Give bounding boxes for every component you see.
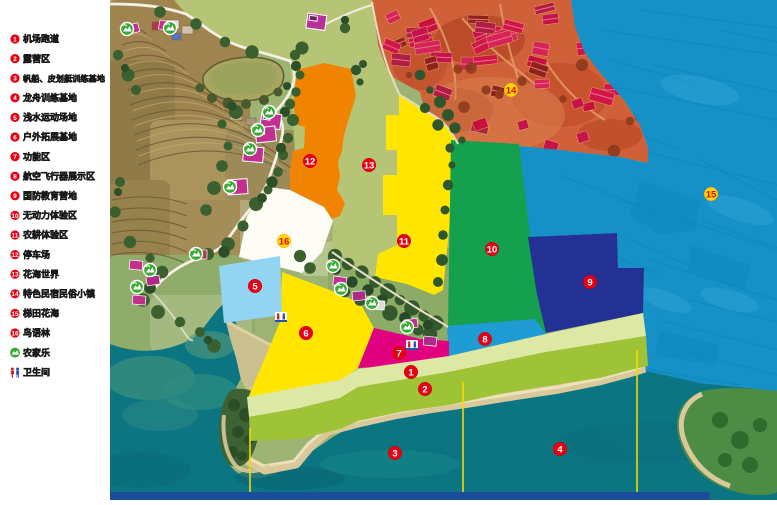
svg-text:花海世界: 花海世界 <box>23 268 59 279</box>
svg-text:7: 7 <box>13 154 17 161</box>
svg-text:浅水运动场地: 浅水运动场地 <box>23 112 77 123</box>
svg-text:户外拓展基地: 户外拓展基地 <box>23 131 77 142</box>
svg-text:9: 9 <box>13 193 17 200</box>
svg-text:2: 2 <box>13 56 17 63</box>
svg-text:露营区: 露营区 <box>23 53 50 64</box>
svg-text:3: 3 <box>13 76 17 83</box>
svg-text:1: 1 <box>408 367 414 378</box>
svg-text:停车场: 停车场 <box>23 249 50 260</box>
svg-text:15: 15 <box>11 311 19 318</box>
svg-text:15: 15 <box>706 189 717 200</box>
svg-text:11: 11 <box>12 232 19 239</box>
svg-text:无动力体验区: 无动力体验区 <box>22 210 77 221</box>
svg-text:16: 16 <box>11 330 19 337</box>
svg-text:鸟语林: 鸟语林 <box>23 327 51 338</box>
svg-text:5: 5 <box>252 281 258 292</box>
svg-text:10: 10 <box>11 213 19 220</box>
svg-text:4: 4 <box>557 444 563 455</box>
svg-text:7: 7 <box>396 348 401 359</box>
svg-text:8: 8 <box>13 174 17 181</box>
svg-text:龙舟训练基地: 龙舟训练基地 <box>22 92 77 103</box>
svg-text:13: 13 <box>364 160 375 171</box>
svg-text:11: 11 <box>399 236 410 247</box>
svg-text:14: 14 <box>11 291 19 298</box>
svg-text:卫生间: 卫生间 <box>23 366 50 377</box>
svg-text:国防教育营地: 国防教育营地 <box>23 190 77 201</box>
svg-text:12: 12 <box>305 156 316 167</box>
svg-text:13: 13 <box>11 272 19 279</box>
svg-text:6: 6 <box>13 134 17 141</box>
svg-text:10: 10 <box>487 244 498 255</box>
svg-text:梯田花海: 梯田花海 <box>23 308 59 319</box>
svg-text:航空飞行器展示区: 航空飞行器展示区 <box>23 170 95 181</box>
svg-text:16: 16 <box>279 236 290 247</box>
svg-text:9: 9 <box>587 277 592 288</box>
svg-text:农家乐: 农家乐 <box>22 347 50 358</box>
svg-text:机场跑道: 机场跑道 <box>23 33 59 44</box>
svg-text:8: 8 <box>482 334 487 345</box>
svg-text:14: 14 <box>506 85 517 96</box>
svg-text:4: 4 <box>13 95 17 102</box>
svg-text:1: 1 <box>13 36 17 43</box>
svg-text:特色民宿民俗小镇: 特色民宿民俗小镇 <box>23 288 95 299</box>
svg-text:5: 5 <box>13 115 17 122</box>
svg-text:12: 12 <box>11 252 19 259</box>
svg-text:农耕体验区: 农耕体验区 <box>22 229 68 240</box>
svg-text:帆船、皮划艇训练基地: 帆船、皮划艇训练基地 <box>23 73 106 83</box>
svg-text:2: 2 <box>422 384 427 395</box>
svg-text:6: 6 <box>303 328 308 339</box>
svg-text:功能区: 功能区 <box>23 151 50 162</box>
svg-text:3: 3 <box>392 448 397 459</box>
